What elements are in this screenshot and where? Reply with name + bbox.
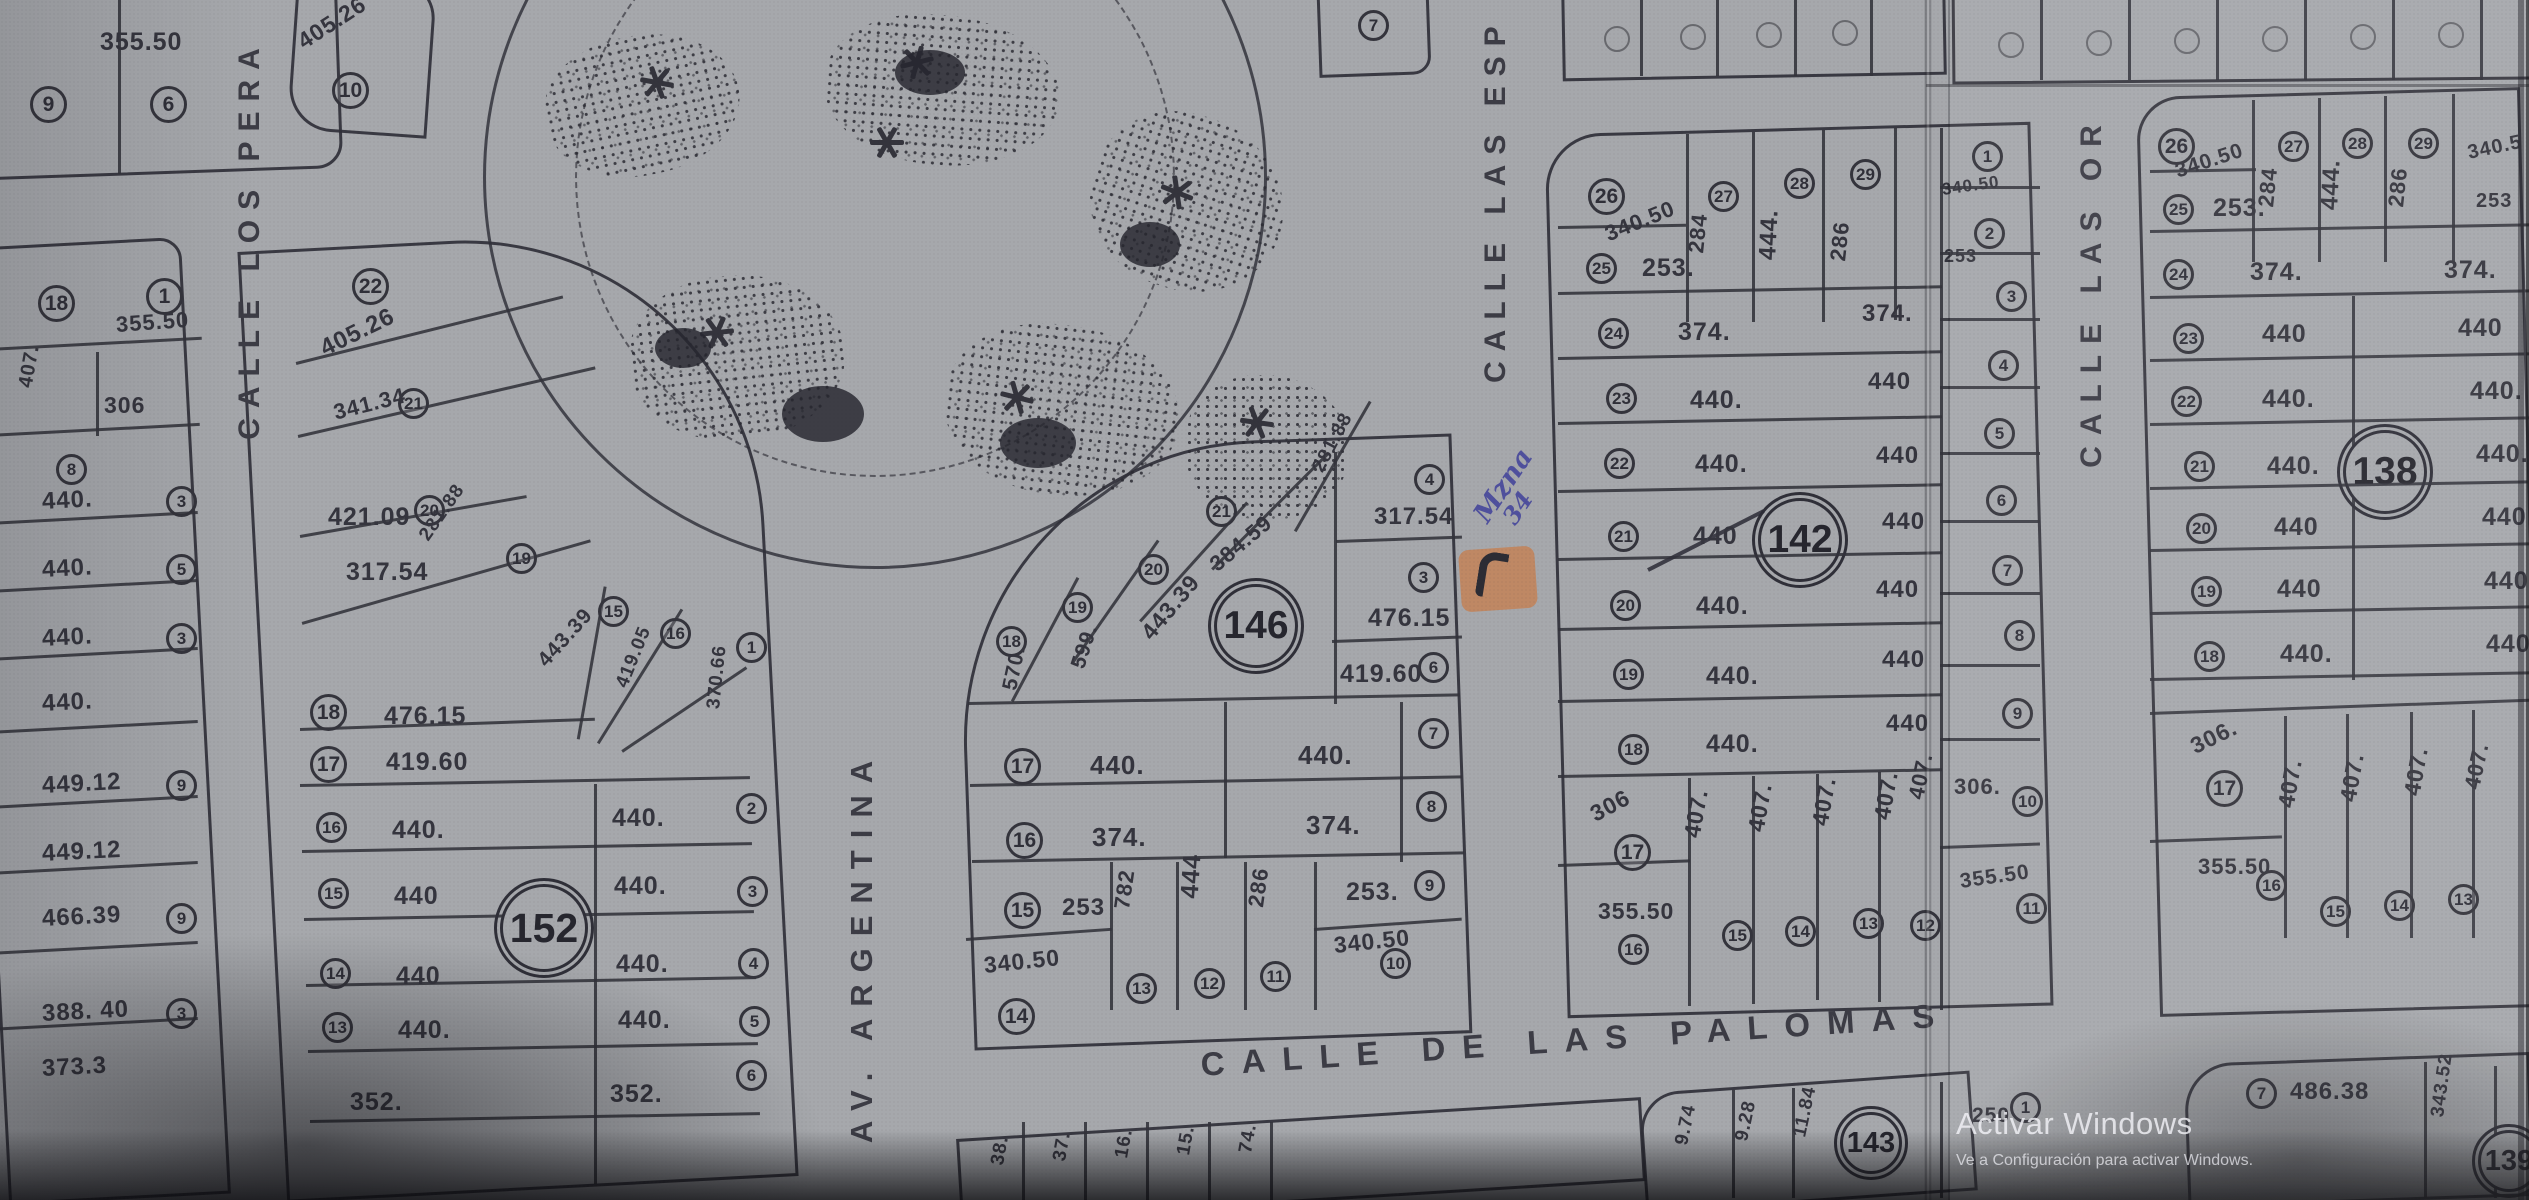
lot-area: 440 bbox=[1868, 368, 1911, 396]
lot-area: 444 bbox=[1176, 853, 1208, 900]
tree-symbol bbox=[870, 140, 904, 145]
lot-number-circle: 19 bbox=[1062, 592, 1093, 623]
lot-number-circle: 19 bbox=[1613, 659, 1644, 690]
lot-number-circle: 24 bbox=[1598, 318, 1629, 349]
faint-lot-circle bbox=[1756, 22, 1782, 48]
lot-number-circle: 15 bbox=[598, 596, 629, 627]
block-number: 142 bbox=[1758, 498, 1842, 582]
lot-number-circle: 17 bbox=[1614, 834, 1651, 871]
lot-number-circle: 16 bbox=[316, 812, 347, 843]
lot-area: 317.54 bbox=[1374, 503, 1453, 531]
lot-area: 355.50 bbox=[1598, 898, 1674, 925]
watermark-line2: Ve a Configuración para activar Windows. bbox=[1956, 1152, 2253, 1170]
watermark-line1: Activar Windows bbox=[1956, 1106, 2193, 1142]
lot-area: 374. bbox=[1678, 318, 1731, 347]
lot-number-circle: 10 bbox=[332, 72, 369, 109]
parcel-line bbox=[1640, 0, 1643, 76]
lot-area: 440. bbox=[614, 872, 667, 901]
lot-number-circle: 1 bbox=[736, 632, 767, 663]
lot-number-circle: 3 bbox=[1408, 562, 1439, 593]
lot-area: 421.09 bbox=[328, 503, 410, 532]
parcel-line bbox=[1940, 128, 1943, 1010]
lot-number-circle: 17 bbox=[1004, 748, 1041, 785]
lot-number-circle: 12 bbox=[1194, 968, 1225, 999]
lot-number-circle: 6 bbox=[1418, 652, 1449, 683]
parcel-line bbox=[1870, 0, 1873, 76]
lot-number-circle: 2 bbox=[736, 793, 767, 824]
lot-area: 374. bbox=[1862, 300, 1913, 328]
garden-bed bbox=[533, 16, 753, 193]
lot-number-circle: 18 bbox=[1618, 734, 1649, 765]
lot-area: 286 bbox=[1825, 220, 1855, 262]
lot-number-circle: 18 bbox=[310, 694, 347, 731]
lot-number-circle: 29 bbox=[1850, 159, 1881, 190]
lot-number-circle: 10 bbox=[1380, 948, 1411, 979]
lot-number-circle: 3 bbox=[737, 876, 768, 907]
lot-number-circle: 16 bbox=[1006, 822, 1043, 859]
lot-number-circle: 14 bbox=[998, 998, 1035, 1035]
lot-number-circle: 28 bbox=[1784, 168, 1815, 199]
lot-area: 419.60 bbox=[386, 748, 468, 777]
lot-number-circle: 15 bbox=[1722, 920, 1753, 951]
street-name-av-argentina: AV. ARGENTINA bbox=[844, 716, 880, 1176]
fold-crease-vertical bbox=[1924, 0, 1932, 1200]
lot-area: 444. bbox=[1754, 209, 1785, 261]
lot-number-circle: 16 bbox=[660, 618, 691, 649]
lot-number-circle: 22 bbox=[1604, 448, 1635, 479]
shrub-blob bbox=[1120, 222, 1180, 267]
cadastral-map-scan: 96355.50405.2610181355.50407.3068440.344… bbox=[0, 0, 2529, 1200]
lot-area: 317.54 bbox=[346, 558, 428, 587]
lot-area: 440 bbox=[1876, 442, 1919, 470]
lot-area: 782 bbox=[1109, 868, 1140, 911]
lot-number-circle: 20 bbox=[1138, 554, 1169, 585]
lot-area: 476.15 bbox=[384, 702, 466, 731]
lot-number-circle: 7 bbox=[1418, 718, 1449, 749]
parcel-line bbox=[1334, 452, 1337, 704]
lot-number-circle: 9 bbox=[1414, 870, 1445, 901]
shrub-blob bbox=[782, 386, 864, 442]
lot-area: 284 bbox=[1683, 212, 1713, 254]
block-number: 146 bbox=[1214, 584, 1298, 668]
lot-number-circle: 21 bbox=[1608, 521, 1639, 552]
lot-number-circle: 13 bbox=[1853, 908, 1884, 939]
lot-area: 440. bbox=[1695, 450, 1748, 479]
street-name-calle-las-esp: CALLE LAS ESP bbox=[1479, 43, 1513, 383]
faint-lot-circle bbox=[1680, 24, 1706, 50]
parcel-line bbox=[1400, 702, 1403, 862]
lot-number-circle: 19 bbox=[506, 543, 537, 574]
lot-area: 440 bbox=[394, 882, 439, 911]
lot-number-circle: 8 bbox=[1416, 791, 1447, 822]
lot-area: 419.60 bbox=[1340, 660, 1422, 689]
lot-area: 440 bbox=[1882, 508, 1925, 536]
lot-number-circle: 27 bbox=[1708, 181, 1739, 212]
garden-bed bbox=[1068, 89, 1308, 316]
lot-area: 476.15 bbox=[1368, 604, 1450, 633]
lot-number-circle: 13 bbox=[1126, 973, 1157, 1004]
vignette-left bbox=[0, 0, 260, 1200]
lot-area: 253 bbox=[1062, 894, 1105, 922]
lot-number-circle: 16 bbox=[1618, 934, 1649, 965]
lot-number-circle: 7 bbox=[1358, 10, 1389, 41]
lot-area: 440. bbox=[1706, 730, 1759, 759]
lot-number-circle: 25 bbox=[1586, 253, 1617, 284]
lot-number-circle: 15 bbox=[1004, 892, 1041, 929]
lot-area: 440. bbox=[392, 816, 445, 845]
lot-number-circle: 15 bbox=[318, 878, 349, 909]
lot-area: 440 bbox=[1886, 710, 1929, 738]
lot-area: 440. bbox=[1706, 662, 1759, 691]
lot-area: 374. bbox=[1306, 810, 1361, 841]
lot-area: 440 bbox=[1876, 576, 1919, 604]
parcel-line bbox=[1314, 862, 1317, 1010]
lot-area: 440. bbox=[612, 804, 665, 833]
parcel-line bbox=[1822, 130, 1825, 322]
faint-lot-circle bbox=[1832, 20, 1858, 46]
parcel-line bbox=[1752, 132, 1755, 322]
lot-area: 440. bbox=[1298, 740, 1353, 771]
lot-area: 286 bbox=[1243, 866, 1274, 909]
lot-area: 440. bbox=[1690, 386, 1743, 415]
lot-number-circle: 4 bbox=[1414, 464, 1445, 495]
lot-number-circle: 21 bbox=[1206, 496, 1237, 527]
parcel-line bbox=[1224, 702, 1227, 858]
faint-lot-circle bbox=[1604, 26, 1630, 52]
lot-number-circle: 23 bbox=[1606, 383, 1637, 414]
lot-number-circle: 20 bbox=[1610, 590, 1641, 621]
shrub-blob bbox=[1000, 418, 1076, 468]
lot-area: 253. bbox=[1642, 254, 1695, 283]
shrub-blob bbox=[895, 50, 965, 95]
lot-area: 440. bbox=[1090, 750, 1145, 781]
lot-number-circle: 17 bbox=[310, 746, 347, 783]
lot-number-circle: 14 bbox=[1785, 916, 1816, 947]
lot-area: 440 bbox=[1882, 646, 1925, 674]
lot-area: 440 bbox=[1693, 522, 1738, 551]
lot-area: 374. bbox=[1092, 822, 1147, 853]
lot-number-circle: 26 bbox=[1588, 178, 1625, 215]
paper-light-right bbox=[1950, 0, 2529, 1200]
lot-area: 440. bbox=[1696, 592, 1749, 621]
shrub-blob bbox=[655, 328, 711, 368]
parcel-line bbox=[1894, 128, 1897, 320]
lot-area: 253. bbox=[1346, 878, 1399, 907]
lot-number-circle: 22 bbox=[352, 268, 389, 305]
lot-number-circle: 11 bbox=[1260, 961, 1291, 992]
parcel-line bbox=[1716, 0, 1719, 76]
parcel-line bbox=[1794, 0, 1797, 76]
